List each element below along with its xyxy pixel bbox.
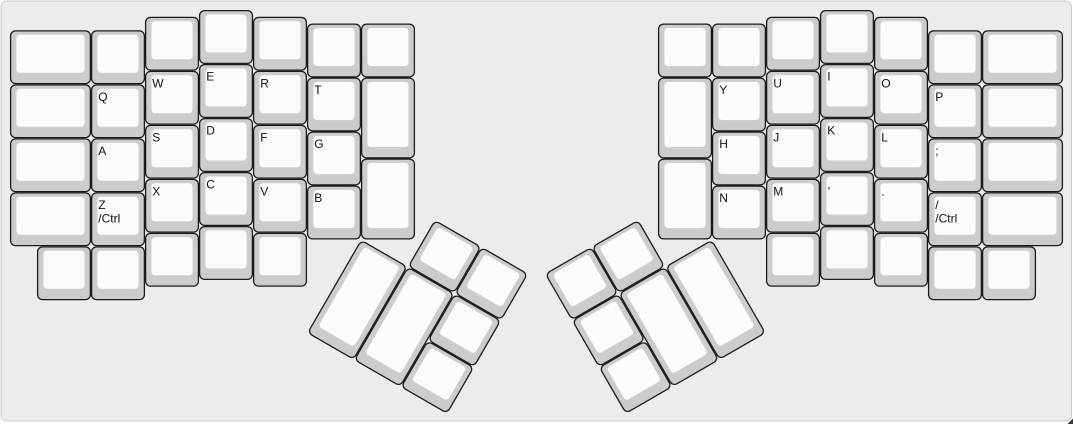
svg-text:Q: Q (98, 90, 107, 104)
svg-text:U: U (773, 76, 782, 90)
svg-text:S: S (152, 130, 160, 144)
svg-text:O: O (881, 76, 890, 90)
svg-text:B: B (314, 191, 322, 205)
svg-text:.: . (881, 184, 884, 198)
svg-text:I: I (827, 70, 830, 84)
svg-text:;: ; (935, 144, 938, 158)
svg-text:J: J (773, 130, 779, 144)
svg-text:Z: Z (98, 198, 105, 212)
svg-text:V: V (260, 184, 268, 198)
svg-text:D: D (206, 124, 215, 138)
svg-text:W: W (152, 76, 164, 90)
svg-text:X: X (152, 184, 160, 198)
svg-text:Y: Y (719, 83, 727, 97)
svg-text:P: P (935, 90, 943, 104)
svg-text:M: M (773, 184, 783, 198)
svg-text:K: K (827, 124, 835, 138)
svg-text:F: F (260, 130, 267, 144)
svg-text:H: H (719, 137, 728, 151)
svg-text:R: R (260, 76, 269, 90)
svg-text:G: G (314, 137, 323, 151)
svg-text:C: C (206, 178, 215, 192)
svg-text:/Ctrl: /Ctrl (98, 212, 120, 226)
svg-text:,: , (827, 178, 830, 192)
svg-text:E: E (206, 70, 214, 84)
svg-text:L: L (881, 130, 888, 144)
svg-text:T: T (314, 83, 322, 97)
svg-text:/Ctrl: /Ctrl (935, 212, 957, 226)
svg-text:N: N (719, 191, 728, 205)
svg-text:A: A (98, 144, 106, 158)
